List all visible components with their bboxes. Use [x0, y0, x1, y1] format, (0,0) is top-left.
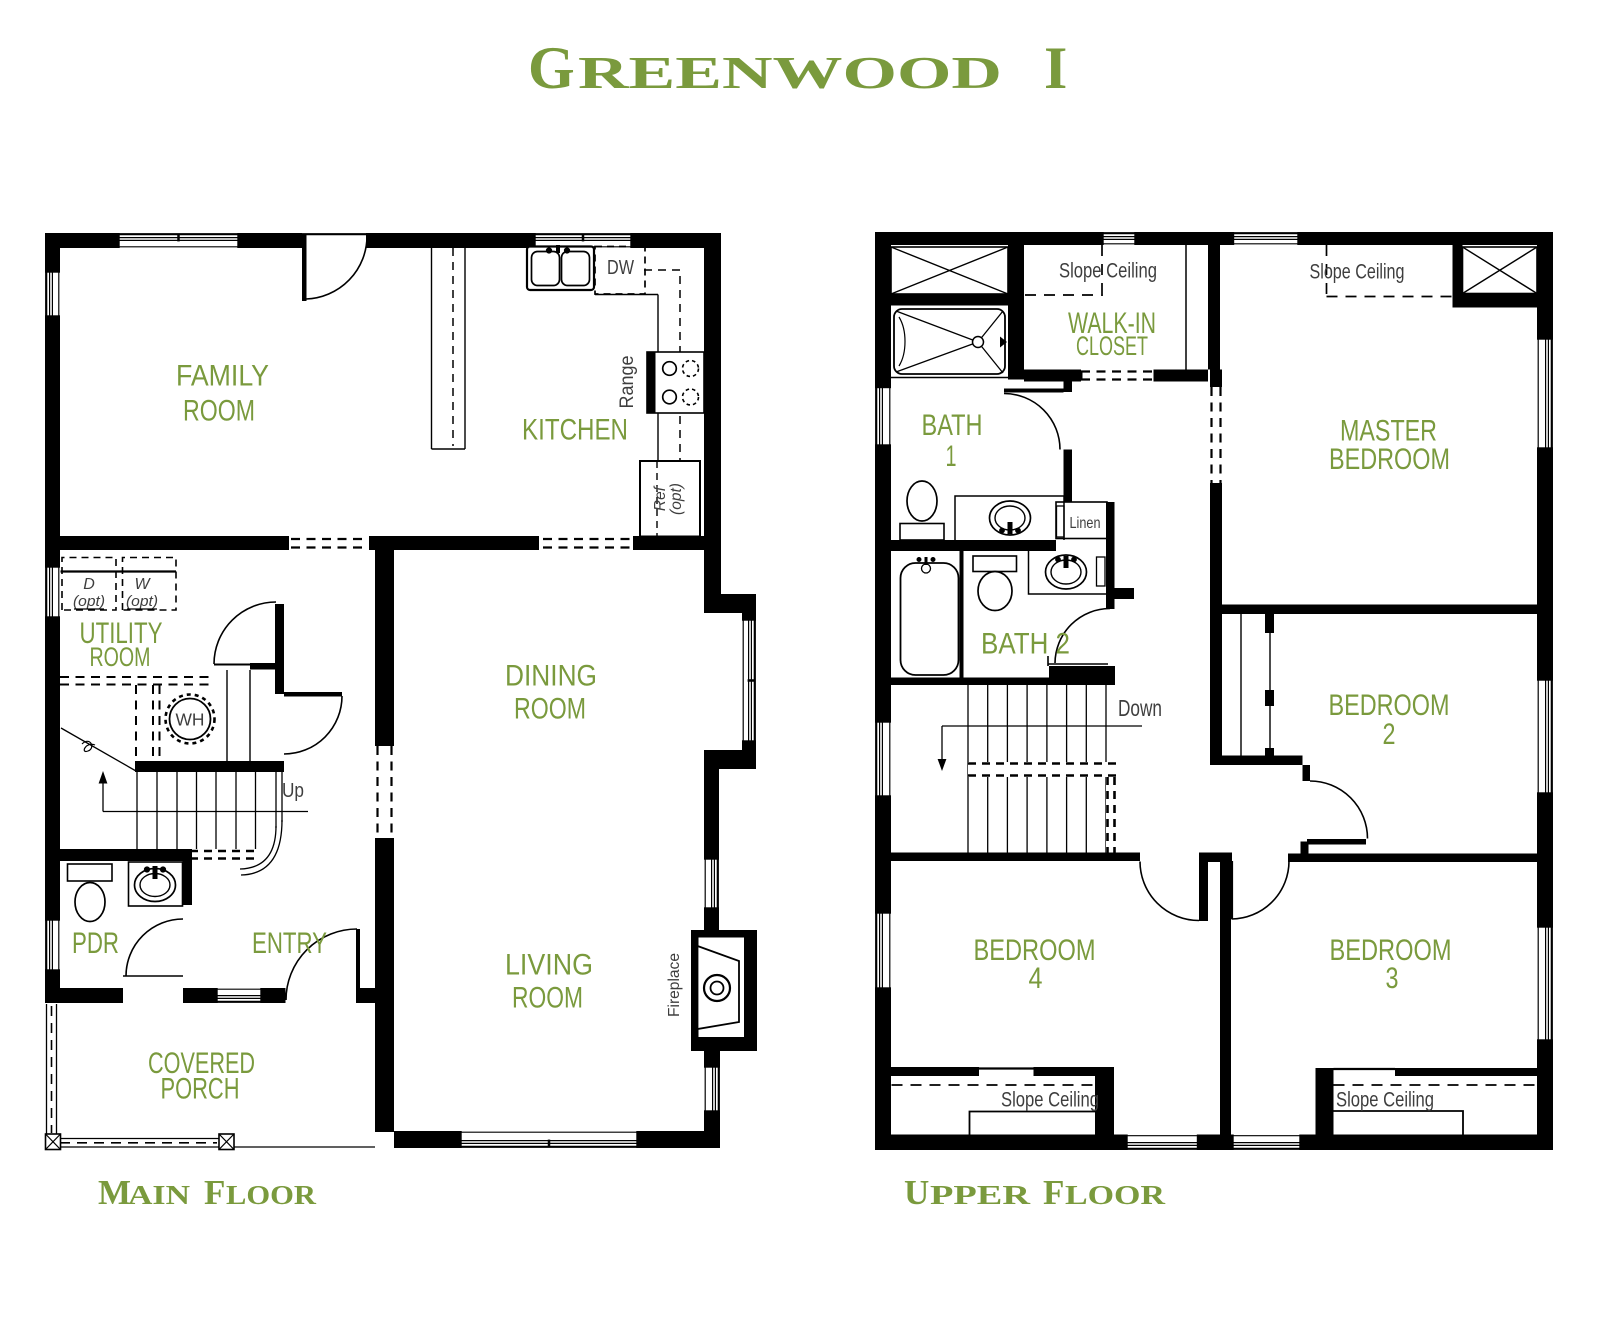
svg-text:(opt): (opt) — [73, 593, 105, 610]
svg-text:2: 2 — [1383, 718, 1396, 751]
svg-text:G: G — [528, 35, 575, 101]
svg-text:Slope Ceiling: Slope Ceiling — [1001, 1088, 1099, 1112]
svg-text:F: F — [1043, 1173, 1064, 1212]
svg-text:3: 3 — [1386, 962, 1399, 995]
svg-text:F: F — [204, 1173, 225, 1212]
svg-text:(opt): (opt) — [668, 483, 685, 515]
svg-text:4: 4 — [1029, 962, 1043, 995]
svg-text:FAMILY: FAMILY — [176, 359, 269, 392]
svg-text:PORCH: PORCH — [161, 1073, 240, 1106]
svg-text:BATH: BATH — [922, 409, 983, 442]
svg-text:U: U — [904, 1173, 929, 1212]
svg-text:W: W — [134, 576, 151, 593]
svg-text:ROOM: ROOM — [512, 981, 583, 1014]
svg-text:REENWOOD: REENWOOD — [578, 47, 1002, 98]
svg-text:DW: DW — [607, 257, 634, 279]
svg-text:ROOM: ROOM — [183, 394, 255, 427]
svg-text:Linen: Linen — [1070, 515, 1101, 532]
svg-text:LOOR: LOOR — [226, 1180, 317, 1210]
svg-text:ROOM: ROOM — [90, 641, 151, 672]
svg-text:LOOR: LOOR — [1065, 1180, 1166, 1210]
svg-text:M: M — [98, 1173, 131, 1212]
svg-text:BEDROOM: BEDROOM — [1329, 443, 1450, 476]
svg-text:BATH 2: BATH 2 — [981, 628, 1070, 661]
svg-text:PDR: PDR — [72, 927, 119, 960]
svg-text:LIVING: LIVING — [505, 948, 593, 981]
svg-text:D: D — [83, 576, 95, 593]
svg-text:KITCHEN: KITCHEN — [522, 413, 628, 446]
svg-text:Up: Up — [282, 780, 304, 802]
svg-text:Ref: Ref — [652, 485, 669, 511]
svg-text:ROOM: ROOM — [514, 692, 586, 725]
svg-text:(opt): (opt) — [126, 593, 158, 610]
svg-text:AIN: AIN — [128, 1180, 191, 1210]
svg-text:Down: Down — [1118, 695, 1162, 721]
svg-text:DINING: DINING — [505, 659, 597, 692]
svg-text:Range: Range — [617, 356, 638, 409]
svg-text:PPER: PPER — [930, 1180, 1031, 1210]
svg-text:ENTRY: ENTRY — [252, 927, 327, 960]
svg-text:I: I — [1044, 35, 1067, 101]
svg-text:Slope Ceiling: Slope Ceiling — [1059, 259, 1157, 283]
svg-text:WH: WH — [176, 710, 205, 730]
svg-text:Fireplace: Fireplace — [666, 953, 683, 1017]
svg-text:Slope Ceiling: Slope Ceiling — [1310, 260, 1405, 284]
svg-text:CLOSET: CLOSET — [1076, 330, 1148, 361]
svg-text:Slope Ceiling: Slope Ceiling — [1336, 1088, 1434, 1112]
svg-text:1: 1 — [946, 440, 957, 473]
